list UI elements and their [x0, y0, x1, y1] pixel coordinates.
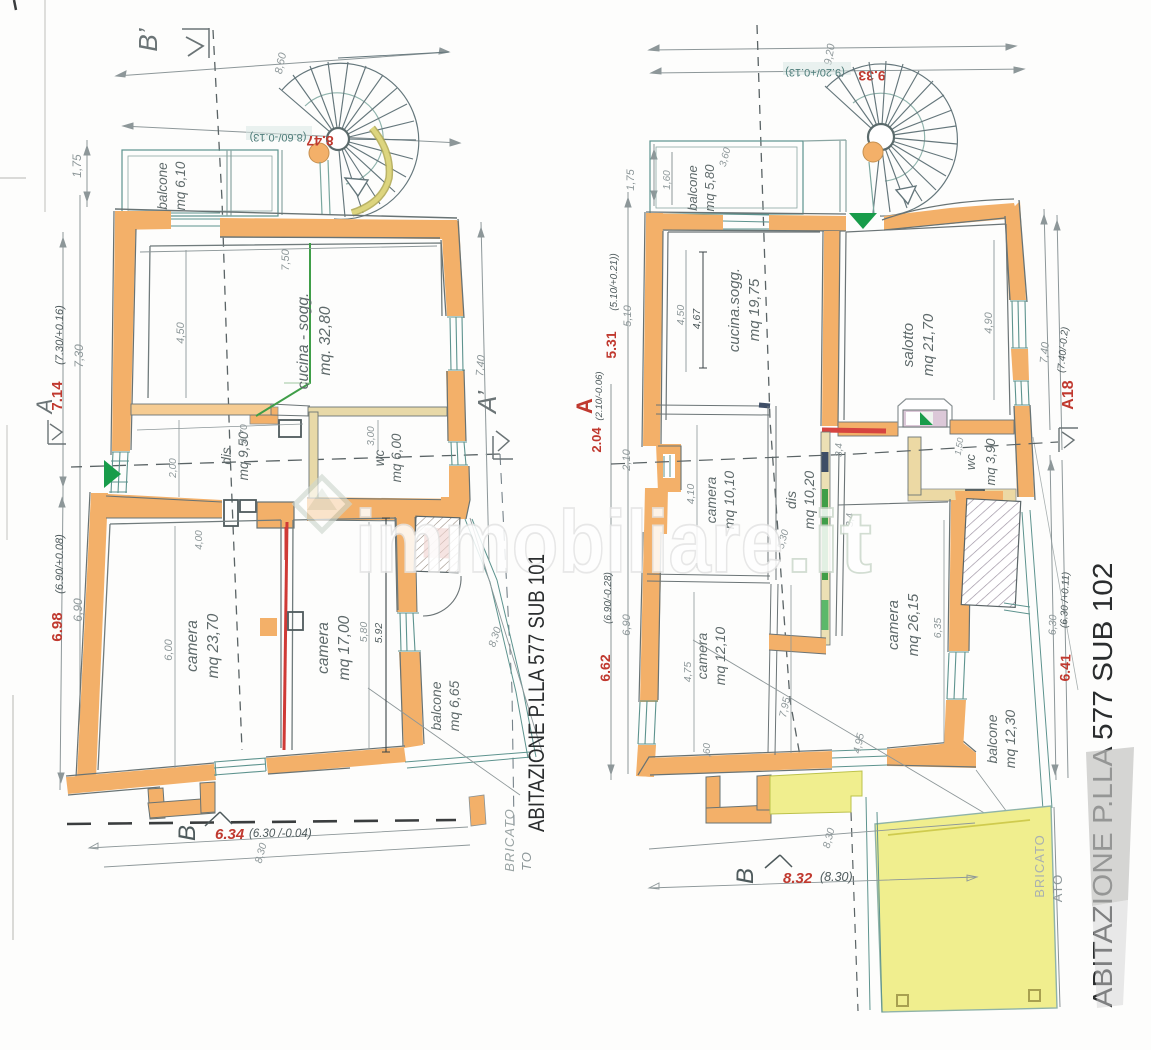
- svg-text:(5.10/+0.21)): (5.10/+0.21)): [609, 253, 620, 311]
- svg-text:(6.90/+0.08): (6.90/+0.08): [54, 534, 66, 594]
- svg-text:immobiliare: immobiliare: [355, 492, 783, 591]
- svg-text:6.98: 6.98: [49, 612, 66, 641]
- svg-text:5.92: 5.92: [373, 623, 385, 644]
- svg-text:cucina.sogg.: cucina.sogg.: [726, 268, 743, 352]
- svg-text:.it: .it: [786, 492, 872, 591]
- svg-text:5,80: 5,80: [358, 622, 370, 643]
- svg-text:mq 12,10: mq 12,10: [712, 627, 728, 686]
- svg-text:mq 21,70: mq 21,70: [920, 313, 937, 376]
- svg-text:4,50: 4,50: [175, 321, 187, 343]
- svg-text:mq 6,00: mq 6,00: [389, 433, 404, 482]
- svg-text:dis: dis: [219, 447, 234, 465]
- svg-text:4,75: 4,75: [682, 662, 694, 683]
- svg-text:mq 6,65: mq 6,65: [446, 680, 462, 731]
- svg-text:8.47: 8.47: [306, 133, 333, 149]
- svg-text:5.31: 5.31: [603, 331, 619, 358]
- svg-text:6,00: 6,00: [163, 638, 175, 660]
- svg-text:(9.20/+0.13): (9.20/+0.13): [785, 66, 845, 78]
- svg-text:1,75: 1,75: [625, 168, 637, 190]
- svg-text:1,75: 1,75: [70, 154, 84, 178]
- svg-text:2.04: 2.04: [589, 427, 604, 453]
- svg-text:camera: camera: [885, 600, 902, 650]
- svg-text:B: B: [174, 825, 201, 841]
- svg-text:cucina - sogg.: cucina - sogg.: [295, 293, 312, 390]
- svg-text:BRICATO: BRICATO: [502, 808, 517, 872]
- svg-text:mq 19,75: mq 19,75: [746, 278, 763, 341]
- svg-text:mq 6,10: mq 6,10: [173, 161, 188, 210]
- svg-text:A: A: [32, 399, 57, 416]
- svg-text:,60: ,60: [702, 743, 713, 757]
- svg-text:mq 17,00: mq 17,00: [336, 615, 353, 680]
- svg-text:A’: A’: [472, 390, 502, 415]
- svg-text:wc: wc: [372, 450, 387, 467]
- svg-text:BRICATO: BRICATO: [1032, 834, 1047, 898]
- svg-text:6.34: 6.34: [215, 826, 245, 843]
- svg-text:4,90: 4,90: [983, 311, 995, 333]
- svg-text:(2.10/-0.06): (2.10/-0.06): [594, 371, 605, 420]
- svg-text:4,67: 4,67: [691, 308, 703, 330]
- svg-text:mq 26,15: mq 26,15: [905, 593, 922, 656]
- svg-text:ABITAZIONE P.LLA 577 SUB 101: ABITAZIONE P.LLA 577 SUB 101: [524, 554, 549, 832]
- svg-text:7,40: 7,40: [1038, 341, 1052, 364]
- svg-text:7,30: 7,30: [72, 344, 86, 368]
- svg-text:(7.30/+0.16): (7.30/+0.16): [54, 305, 66, 365]
- svg-text:TO: TO: [519, 851, 534, 871]
- svg-text:ATO: ATO: [1050, 874, 1065, 903]
- svg-text:mq 5,80: mq 5,80: [702, 164, 717, 212]
- svg-text:7,40: 7,40: [474, 354, 488, 377]
- svg-text:7,50: 7,50: [280, 248, 292, 270]
- svg-text:(6.30 /-0.04): (6.30 /-0.04): [249, 828, 312, 840]
- svg-text:mq 12,30: mq 12,30: [1002, 710, 1018, 769]
- svg-text:salotto: salotto: [900, 323, 917, 367]
- svg-text:4,00: 4,00: [194, 530, 205, 550]
- svg-text:5,10: 5,10: [622, 304, 634, 326]
- svg-text:mq 3,90: mq 3,90: [983, 438, 998, 486]
- svg-text:6.62: 6.62: [597, 654, 613, 681]
- svg-text:1,60: 1,60: [662, 170, 673, 190]
- svg-text:B’: B’: [133, 27, 163, 51]
- svg-text:8.32: 8.32: [783, 870, 813, 887]
- svg-text:3,4: 3,4: [834, 443, 845, 457]
- svg-text:camera: camera: [694, 632, 710, 679]
- svg-text:balcone: balcone: [428, 681, 444, 730]
- svg-text:3,00: 3,00: [366, 426, 377, 446]
- svg-text:B: B: [732, 868, 759, 884]
- svg-text:2,10: 2,10: [621, 448, 633, 471]
- svg-text:mq. 32,80: mq. 32,80: [317, 306, 334, 375]
- svg-text:4,70: 4,70: [239, 424, 250, 444]
- svg-text:(6.30 /+0.11): (6.30 /+0.11): [1059, 572, 1072, 629]
- svg-text:balcone: balcone: [984, 714, 1000, 763]
- svg-text:6,90: 6,90: [621, 613, 633, 635]
- svg-text:wc: wc: [963, 454, 978, 470]
- svg-text:camera: camera: [315, 622, 332, 674]
- svg-text:camera: camera: [184, 620, 201, 672]
- svg-text:6.41: 6.41: [1057, 654, 1074, 682]
- svg-text:balcone: balcone: [685, 165, 700, 211]
- svg-text:balcone: balcone: [155, 162, 170, 209]
- svg-text:(8.60/-0.13): (8.60/-0.13): [250, 131, 307, 143]
- svg-text:mq 23,70: mq 23,70: [205, 613, 222, 678]
- svg-text:6,90: 6,90: [71, 598, 85, 622]
- svg-text:4,50: 4,50: [675, 305, 687, 326]
- svg-text:2,00: 2,00: [168, 458, 179, 479]
- svg-text:6,35: 6,35: [932, 618, 944, 639]
- svg-text:6,30: 6,30: [1047, 614, 1060, 635]
- svg-text:(8.30): (8.30): [820, 870, 853, 884]
- svg-text:A18: A18: [1060, 380, 1077, 409]
